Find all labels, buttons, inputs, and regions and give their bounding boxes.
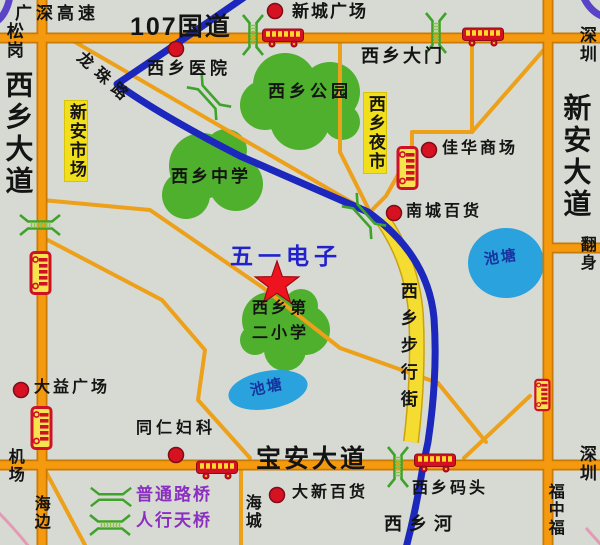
rail-line-bottomright [586, 528, 600, 545]
poi-dot-jiahua [422, 143, 437, 158]
bus-station-icon [32, 408, 51, 449]
poi-label-xixiang-gate: 西乡大门 [361, 47, 445, 66]
expressway-arc-topright [583, 0, 600, 17]
poi-dot-nancheng [387, 206, 402, 221]
poi-dot-dayi [14, 383, 29, 398]
poi-label-wuyi-electronics: 五一电子 [230, 244, 342, 268]
map-canvas: 广深高速 松岗 107国道 新城广场 深圳 西乡医院 龙珠路 西乡大门 西乡公园… [0, 0, 600, 545]
road-label-xinan-avenue: 新安大道 [561, 93, 590, 221]
poi-dot-hospital [169, 42, 184, 57]
bus-icon [197, 461, 238, 479]
ordinary-bridge-icon [187, 74, 231, 120]
road-label-fuzhongfu: 福中福 [545, 483, 562, 537]
poi-dot-tongren [169, 448, 184, 463]
legend-ordinary-bridge-icon [91, 488, 131, 506]
expressway-arc-topleft [0, 0, 10, 22]
bus-station-icon [398, 148, 417, 189]
poi-label-xixiang-park: 西乡公园 [268, 83, 352, 101]
poi-label-primary-school-line1: 西乡第 [252, 301, 309, 318]
poi-label-daxin-store: 大新百货 [292, 485, 368, 502]
legend-label-ordinary-bridge: 普通路桥 [136, 486, 212, 504]
direction-label-fanshen: 翻身 [577, 236, 594, 272]
direction-label-haicheng: 海城 [242, 494, 259, 530]
direction-label-shenzhen-se: 深圳 [577, 445, 595, 483]
road-label-baoan-avenue: 宝安大道 [256, 446, 368, 472]
road-label-xixiang-river: 西乡河 [384, 515, 459, 534]
bus-station-icon [31, 253, 50, 294]
direction-label-haibian: 海边 [31, 495, 48, 531]
poi-label-primary-school-line2: 二小学 [252, 326, 309, 343]
direction-label-shenzhen-ne: 深圳 [577, 26, 595, 64]
poi-label-xixiang-hospital: 西乡医院 [147, 60, 231, 78]
direction-label-songgang: 松岗 [4, 22, 22, 60]
poi-label-xinan-market: 新安市场 [65, 101, 87, 181]
poi-label-tongren-clinic: 同仁妇科 [136, 421, 216, 438]
road-label-xixiang-avenue: 西乡大道 [3, 70, 32, 198]
legend-footbridge-icon [90, 515, 130, 535]
road-label-pedestrian-street: 西乡步行街 [398, 282, 416, 417]
poi-label-xixiang-wharf: 西乡码头 [412, 481, 488, 498]
poi-label-xincheng-plaza: 新城广场 [292, 3, 368, 21]
poi-label-middle-school: 西乡中学 [171, 168, 251, 186]
poi-label-dayi-plaza: 大益广场 [34, 380, 110, 397]
poi-label-jiahua-mall: 佳华商场 [442, 141, 518, 158]
road-label-g107: 107国道 [130, 14, 232, 40]
poi-dot-daxin [270, 488, 285, 503]
rail-line-bottomleft [0, 512, 30, 545]
bus-icon [263, 29, 304, 47]
poi-label-nancheng-store: 南城百货 [406, 204, 482, 221]
bus-station-icon [535, 380, 549, 410]
legend-label-footbridge: 人行天桥 [136, 512, 212, 530]
direction-label-airport: 机场 [5, 448, 22, 484]
poi-label-night-market: 西乡夜市 [364, 93, 386, 173]
poi-dot-xincheng [268, 4, 283, 19]
road-label-guangshen-expressway: 广深高速 [15, 5, 99, 23]
